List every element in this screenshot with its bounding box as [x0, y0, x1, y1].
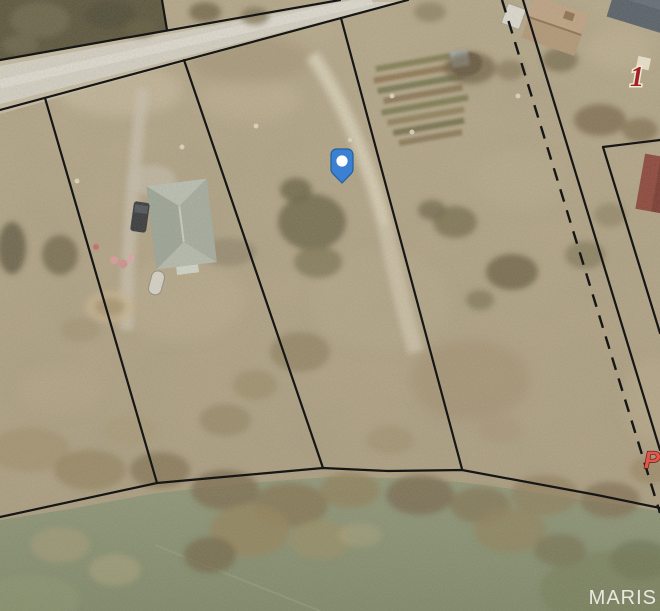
- pin-dot: [336, 155, 347, 166]
- photo-grain-light: [0, 0, 660, 611]
- maris-watermark: MARIS: [589, 587, 657, 609]
- map-canvas: 1 P MARIS: [0, 0, 660, 611]
- road-label-p: P: [644, 447, 660, 474]
- aerial-map[interactable]: 1 P MARIS: [0, 0, 660, 611]
- lot-label-1: 1: [630, 62, 644, 93]
